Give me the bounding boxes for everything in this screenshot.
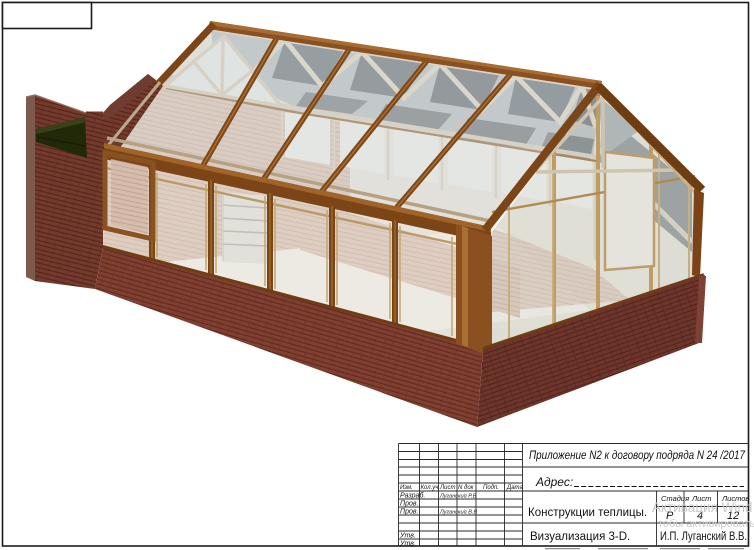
svg-text:Лист: Лист (439, 485, 455, 491)
svg-text:Луганский В.В: Луганский В.В (439, 509, 477, 516)
svg-text:N док: N док (458, 485, 475, 491)
svg-text:Изм.: Изм. (400, 485, 413, 491)
svg-text:Визуализация 3-D.: Визуализация 3-D. (530, 531, 630, 543)
svg-text:Приложение N2 к договору подр: Приложение N2 к договору подряда N 24 /2… (529, 450, 746, 462)
svg-text:Дата: Дата (506, 485, 523, 491)
svg-text:Луганский Р.В: Луганский Р.В (439, 493, 477, 500)
svg-text:И.П. Луганский В.В.: И.П. Луганский В.В. (660, 531, 747, 543)
svg-text:Конструкции теплицы.: Конструкции теплицы. (528, 507, 647, 519)
svg-text:Утв.: Утв. (399, 541, 416, 548)
svg-text:Разраб.: Разраб. (400, 492, 425, 500)
svg-text:Кол.уч: Кол.уч (421, 485, 439, 491)
svg-text:Пров.: Пров. (400, 501, 419, 508)
svg-text:Пров.: Пров. (400, 509, 419, 516)
svg-text:Подп.: Подп. (483, 485, 499, 491)
svg-text:Адрес:: Адрес: (535, 475, 573, 489)
svg-text:Активация Wind: Активация Wind (652, 500, 752, 515)
svg-text:тобы активировать: тобы активировать (658, 518, 754, 530)
svg-text:Утв.: Утв. (399, 533, 416, 540)
